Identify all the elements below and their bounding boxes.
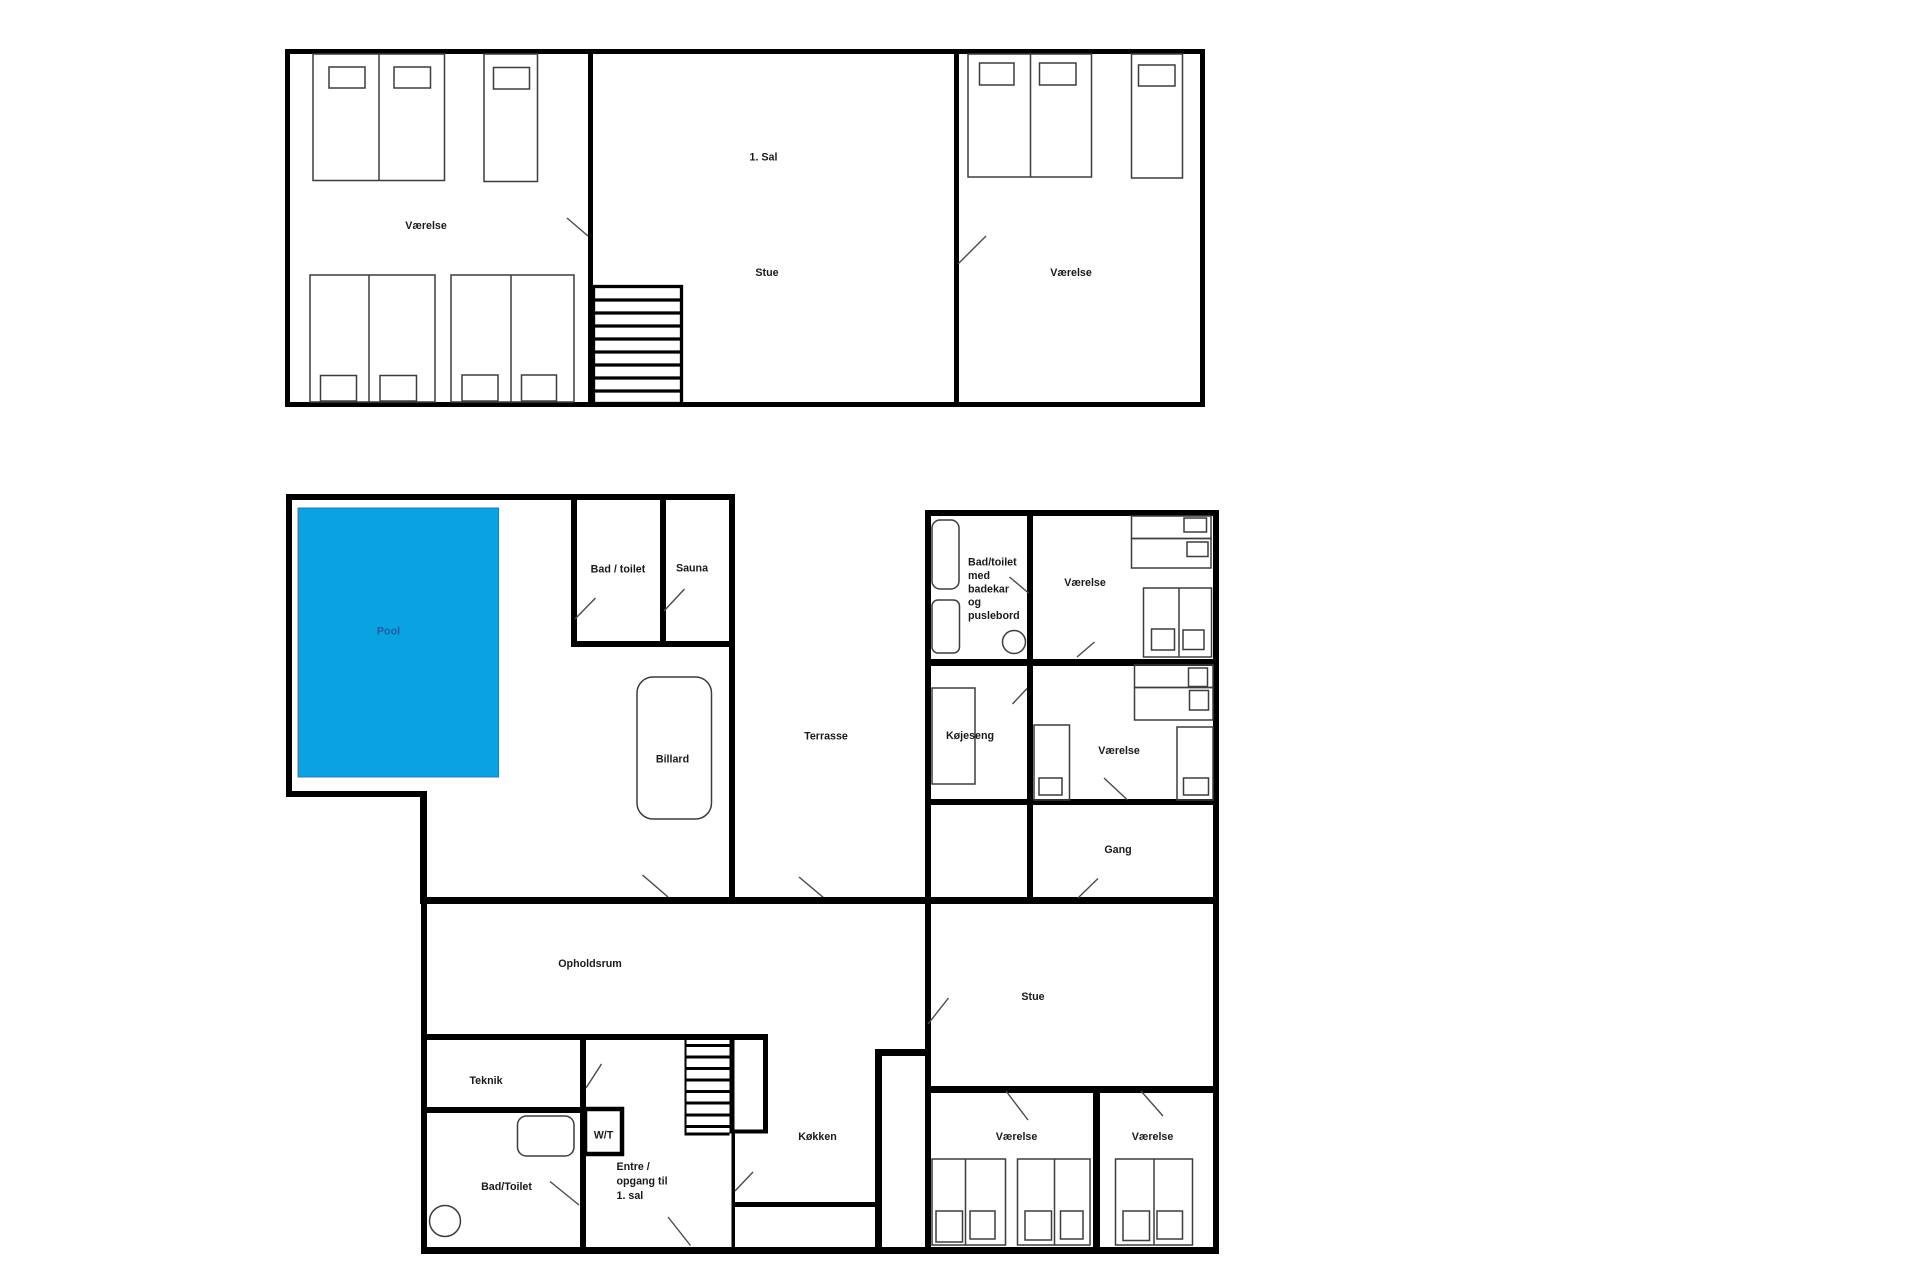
svg-text:Sauna: Sauna xyxy=(676,563,709,575)
svg-text:Billard: Billard xyxy=(656,754,689,766)
svg-text:Gang: Gang xyxy=(1104,844,1131,856)
svg-text:Opholdsrum: Opholdsrum xyxy=(558,958,622,970)
svg-text:Bad / toilet: Bad / toilet xyxy=(591,564,646,576)
svg-text:Værelse: Værelse xyxy=(405,220,447,232)
svg-text:Værelse: Værelse xyxy=(996,1131,1038,1143)
svg-text:Værelse: Værelse xyxy=(1064,577,1106,589)
svg-text:Stue: Stue xyxy=(755,267,778,279)
svg-text:Pool: Pool xyxy=(377,626,400,638)
svg-text:Køjeseng: Køjeseng xyxy=(946,730,994,742)
svg-text:Stue: Stue xyxy=(1021,991,1044,1003)
svg-text:Terrasse: Terrasse xyxy=(804,731,848,743)
svg-text:Bad/Toilet: Bad/Toilet xyxy=(481,1181,532,1193)
svg-text:Værelse: Værelse xyxy=(1098,745,1140,757)
svg-text:W/T: W/T xyxy=(594,1130,614,1142)
svg-text:Værelse: Værelse xyxy=(1050,267,1092,279)
svg-text:Teknik: Teknik xyxy=(469,1075,502,1087)
svg-text:Værelse: Værelse xyxy=(1132,1131,1174,1143)
svg-text:Køkken: Køkken xyxy=(798,1131,837,1143)
svg-text:1. Sal: 1. Sal xyxy=(750,152,778,164)
